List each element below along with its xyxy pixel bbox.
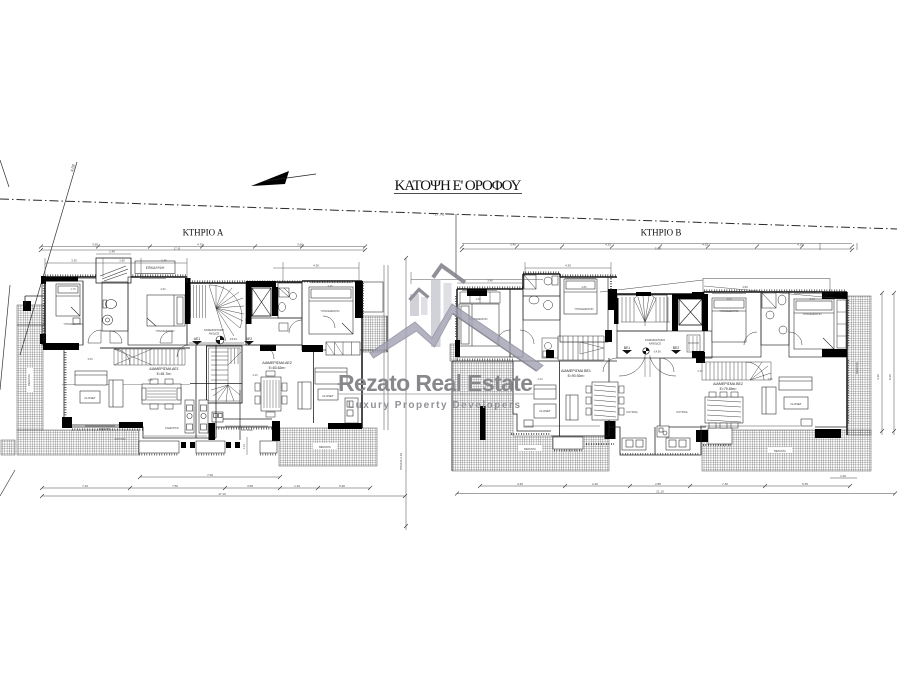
svg-text:2.20: 2.20 <box>592 482 598 486</box>
svg-text:CLOSET: CLOSET <box>84 396 95 400</box>
svg-text:ΒΕΡΑΝΤΑ: ΒΕΡΑΝΤΑ <box>319 445 331 449</box>
svg-text:8.20: 8.20 <box>888 374 892 380</box>
svg-text:ΒΕΡΑΝΤΑ: ΒΕΡΑΝΤΑ <box>855 362 859 374</box>
svg-text:ΕΠΙΚΑΛΥΨΗ: ΕΠΙΚΑΛΥΨΗ <box>146 266 165 270</box>
svg-text:-14.36: -14.36 <box>653 350 661 354</box>
svg-text:3.60: 3.60 <box>297 243 303 247</box>
svg-text:ΠΡΑΣΙΑ 2.10: ΠΡΑΣΙΑ 2.10 <box>399 453 403 470</box>
svg-text:4.10: 4.10 <box>797 243 803 247</box>
svg-text:1.10: 1.10 <box>242 443 246 449</box>
svg-text:ΑΕ1: ΑΕ1 <box>194 337 201 341</box>
svg-text:ΥΠΝΟΔΩΜΑΤΙΟ: ΥΠΝΟΔΩΜΑΤΙΟ <box>155 329 174 333</box>
svg-text:7.40: 7.40 <box>722 482 728 486</box>
svg-text:ΑΕ2: ΑΕ2 <box>246 337 253 341</box>
svg-text:Ε=83.62m²: Ε=83.62m² <box>269 366 287 370</box>
svg-text:ΥΠΝΟΔΩΜΑΤΙΟ: ΥΠΝΟΔΩΜΑΤΙΟ <box>719 309 738 313</box>
svg-text:4.10: 4.10 <box>537 377 543 381</box>
svg-text:ΒΕ2: ΒΕ2 <box>673 346 680 350</box>
svg-text:ΚΤΗΡΙΟ Α: ΚΤΗΡΙΟ Α <box>183 228 224 238</box>
svg-text:3.00: 3.00 <box>726 297 732 301</box>
svg-text:21.10: 21.10 <box>655 247 662 251</box>
svg-text:ΑΝΟΔΟΣ: ΑΝΟΔΟΣ <box>209 333 220 336</box>
svg-text:3.40: 3.40 <box>517 482 523 486</box>
svg-text:-17.76: -17.76 <box>433 212 445 217</box>
svg-text:3.85: 3.85 <box>767 377 773 381</box>
svg-text:3.30: 3.30 <box>71 259 77 263</box>
svg-text:CLOSET: CLOSET <box>539 409 550 413</box>
svg-text:2.90: 2.90 <box>160 287 166 291</box>
svg-text:CLOSET: CLOSET <box>790 402 801 406</box>
svg-text:5.90: 5.90 <box>339 484 345 488</box>
svg-text:ΚΑΘΙΣΤΙΚΟ: ΚΑΘΙΣΤΙΚΟ <box>165 426 179 430</box>
svg-text:ΥΠΝΟΔΩΜΑΤΙΟ: ΥΠΝΟΔΩΜΑΤΙΟ <box>63 322 82 326</box>
svg-text:ΒΕΡΑΝΤΑ: ΒΕΡΑΝΤΑ <box>524 447 536 451</box>
svg-text:3.40: 3.40 <box>809 297 815 301</box>
svg-text:3.95: 3.95 <box>92 243 98 247</box>
svg-text:4.25: 4.25 <box>605 243 611 247</box>
svg-text:ΚΑΤΟΨΗ Ε' ΟΡΟΦΟΥ: ΚΑΤΟΨΗ Ε' ΟΡΟΦΟΥ <box>395 178 522 194</box>
svg-text:4.70: 4.70 <box>197 243 203 247</box>
svg-text:Ε=79.45m²: Ε=79.45m² <box>720 387 738 391</box>
svg-text:3.60: 3.60 <box>87 357 93 361</box>
svg-text:17.10: 17.10 <box>174 247 181 251</box>
svg-text:ΥΠΝΟΔΩΜΑΤΙΟ: ΥΠΝΟΔΩΜΑΤΙΟ <box>320 309 339 313</box>
svg-text:ΔΙΑΜΕΡΙΣΜΑ ΑΕ1: ΔΙΑΜΕΡΙΣΜΑ ΑΕ1 <box>149 367 179 371</box>
svg-text:Ε=81.7m²: Ε=81.7m² <box>157 372 173 376</box>
svg-text:3.45: 3.45 <box>327 284 333 288</box>
svg-text:1.90: 1.90 <box>119 259 125 263</box>
svg-text:ΚΑΤΟΨΗ: ΚΑΤΟΨΗ <box>115 437 126 441</box>
svg-text:ΥΠΝΟΔΩΜΑΤΙΟ: ΥΠΝΟΔΩΜΑΤΙΟ <box>574 307 593 311</box>
svg-text:2.85: 2.85 <box>655 482 661 486</box>
svg-text:Luxury Property Developers: Luxury Property Developers <box>348 400 520 411</box>
svg-text:4.30: 4.30 <box>565 264 571 268</box>
svg-text:Ε=90.92m²: Ε=90.92m² <box>568 374 586 378</box>
svg-text:1.95: 1.95 <box>147 378 153 382</box>
svg-text:1.60: 1.60 <box>475 297 481 301</box>
svg-text:1.10: 1.10 <box>294 484 300 488</box>
svg-text:4.35: 4.35 <box>702 243 708 247</box>
svg-text:2.80: 2.80 <box>581 285 587 289</box>
svg-text:ΔΙΑΜΕΡΙΣΜΑ ΒΕ1: ΔΙΑΜΕΡΙΣΜΑ ΒΕ1 <box>561 369 591 373</box>
svg-text:21.10: 21.10 <box>656 490 664 494</box>
svg-text:17.10: 17.10 <box>218 492 226 496</box>
svg-text:2.35: 2.35 <box>697 369 703 373</box>
svg-text:-15.04: -15.04 <box>229 337 237 341</box>
svg-text:ΒΕΡΑΝΤΑ: ΒΕΡΑΝΤΑ <box>774 449 786 453</box>
svg-text:ΔΙΑΜΕΡΙΣΜΑ ΒΕ2: ΔΙΑΜΕΡΙΣΜΑ ΒΕ2 <box>713 382 743 386</box>
svg-text:ΥΠΝΟΔΩΜΑΤΙΟ: ΥΠΝΟΔΩΜΑΤΙΟ <box>802 312 821 316</box>
svg-text:4.60: 4.60 <box>742 285 748 289</box>
svg-text:1.70: 1.70 <box>70 287 76 291</box>
svg-text:3.40: 3.40 <box>510 243 516 247</box>
svg-text:ΒΕΡΑΝΤΑ: ΒΕΡΑΝΤΑ <box>99 427 111 431</box>
svg-text:ΚΟΥΖΙΝΑ: ΚΟΥΖΙΝΑ <box>241 428 252 432</box>
svg-text:2.45: 2.45 <box>161 259 167 263</box>
svg-text:4.20: 4.20 <box>252 373 258 377</box>
svg-text:ΒΕ1: ΒΕ1 <box>624 346 631 350</box>
svg-text:ΚΑΘΟΔΟΣ: ΚΑΘΟΔΟΣ <box>649 343 662 346</box>
svg-text:Rezato Real Estate: Rezato Real Estate <box>338 370 534 396</box>
svg-text:5.45: 5.45 <box>802 482 808 486</box>
svg-text:ΚΟΥΖΙΝΑ: ΚΟΥΖΙΝΑ <box>676 410 687 414</box>
svg-text:7.50: 7.50 <box>172 484 178 488</box>
svg-text:4.30: 4.30 <box>876 374 880 380</box>
svg-text:7.10: 7.10 <box>82 484 88 488</box>
svg-text:3.40: 3.40 <box>487 279 493 283</box>
svg-text:1.00: 1.00 <box>840 474 846 478</box>
svg-text:ΚΤΗΡΙΟ Β: ΚΤΗΡΙΟ Β <box>641 228 682 238</box>
svg-text:7.00: 7.00 <box>207 473 213 477</box>
svg-text:ΔΙΑΜΕΡΙΣΜΑ ΑΕ2: ΔΙΑΜΕΡΙΣΜΑ ΑΕ2 <box>262 361 292 365</box>
svg-text:ΚΟΥΖΙΝΑ: ΚΟΥΖΙΝΑ <box>626 410 637 414</box>
svg-text:1.40: 1.40 <box>109 250 115 254</box>
svg-text:4.30: 4.30 <box>313 264 319 268</box>
svg-text:CLOSET: CLOSET <box>322 394 333 398</box>
svg-text:ΒΕΡΑΝΤΑ: ΒΕΡΑΝΤΑ <box>27 374 31 386</box>
svg-text:3.55: 3.55 <box>247 484 253 488</box>
